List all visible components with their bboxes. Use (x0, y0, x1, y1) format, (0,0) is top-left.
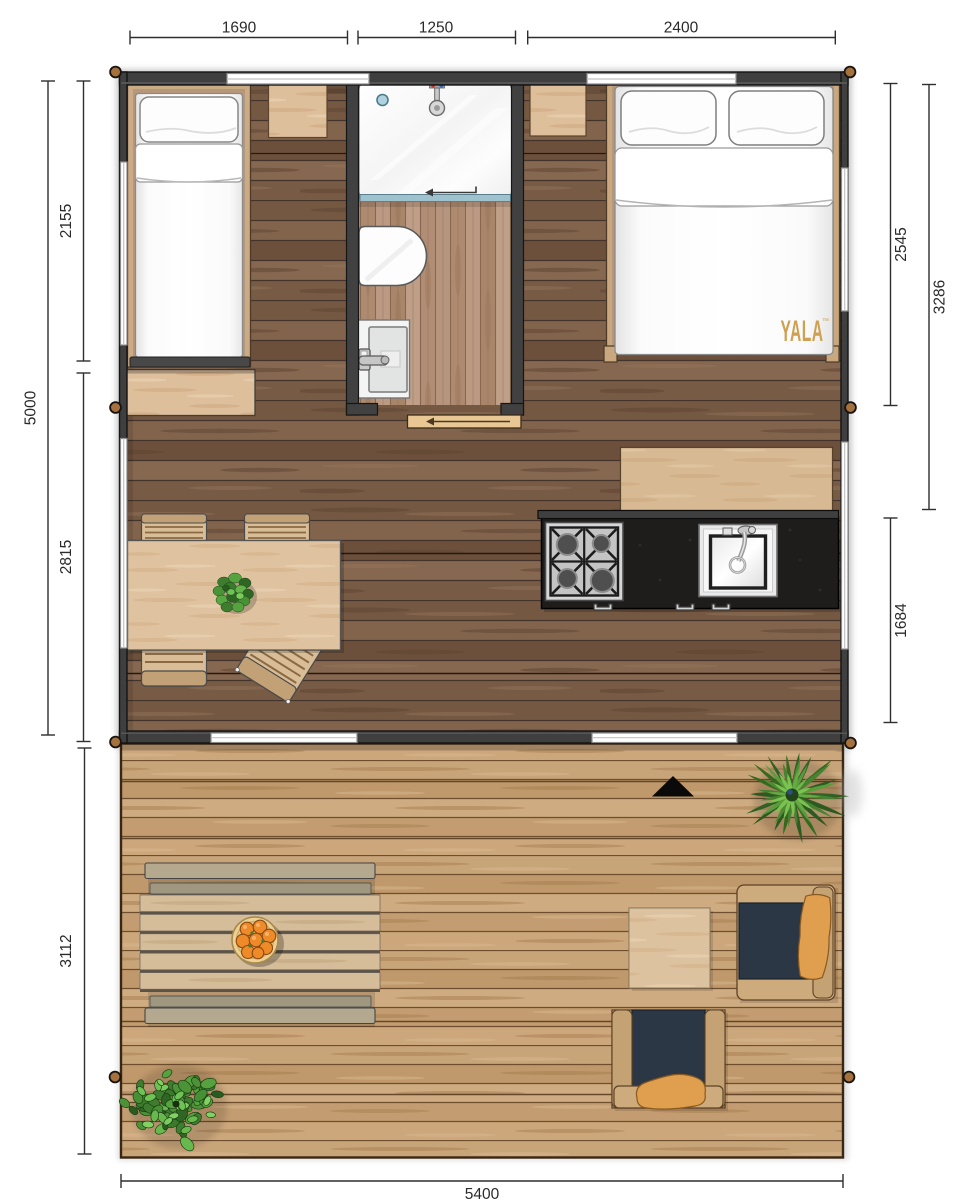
svg-text:2400: 2400 (664, 20, 699, 37)
svg-text:2815: 2815 (58, 540, 75, 574)
svg-text:2545: 2545 (893, 227, 910, 261)
svg-text:2155: 2155 (58, 204, 75, 238)
svg-text:1690: 1690 (222, 20, 257, 37)
svg-text:™: ™ (822, 318, 829, 325)
svg-text:1250: 1250 (419, 20, 454, 37)
svg-text:5000: 5000 (23, 390, 40, 425)
svg-text:5400: 5400 (465, 1186, 500, 1200)
svg-text:1684: 1684 (893, 603, 910, 638)
svg-text:3286: 3286 (932, 280, 949, 314)
svg-text:3112: 3112 (58, 934, 75, 967)
svg-text:YALA: YALA (780, 315, 823, 349)
